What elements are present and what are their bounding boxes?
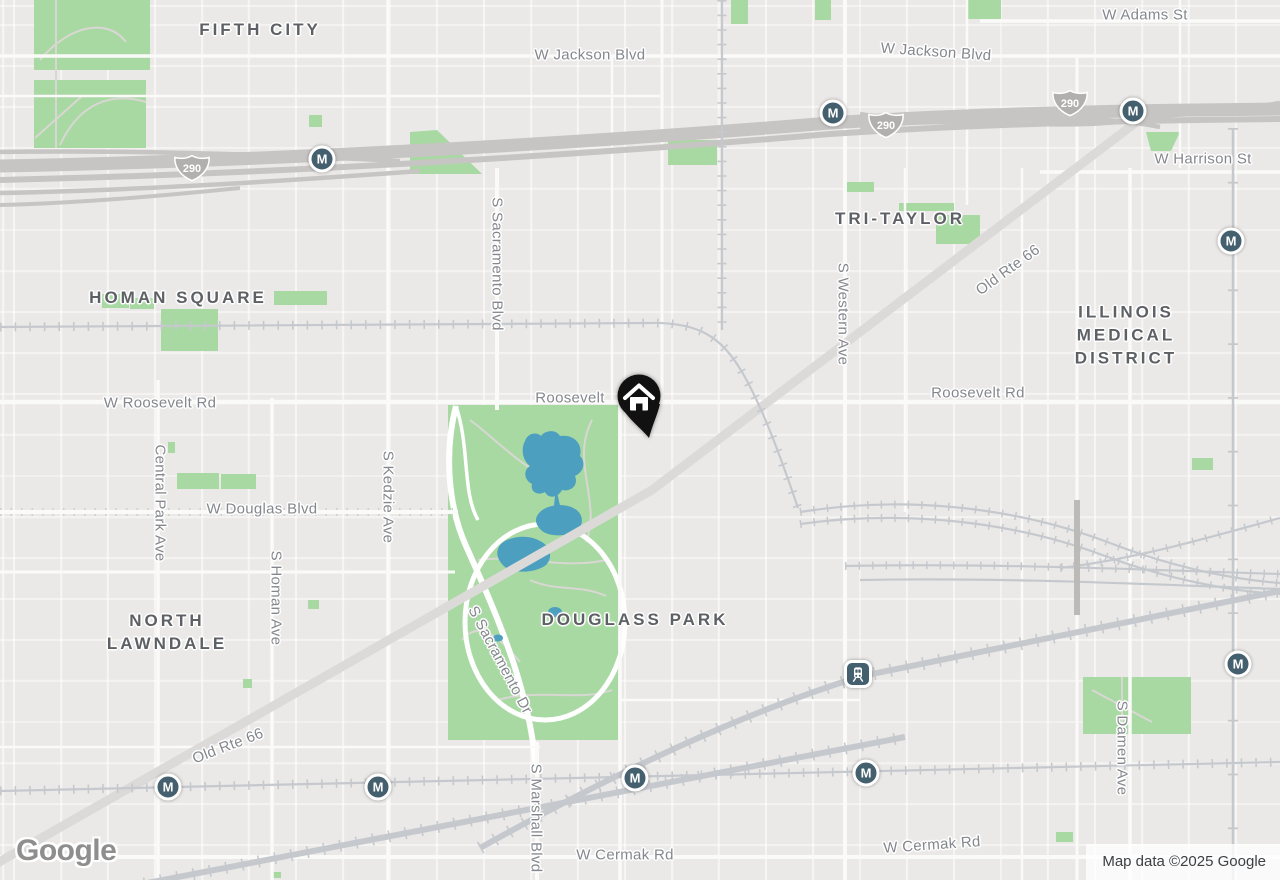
metro-station-marker[interactable]: M — [853, 760, 880, 787]
metro-letter: M — [373, 781, 384, 794]
route-shield-number: 290 — [1061, 98, 1079, 110]
metro-station-marker[interactable]: M — [1218, 228, 1245, 255]
imd-line2: MEDICAL — [1075, 324, 1177, 347]
map-attribution: Map data ©2025 Google — [1086, 844, 1280, 880]
home-pin-icon — [607, 370, 671, 444]
street-label-s-homan-ave: S Homan Ave — [268, 551, 285, 646]
metro-letter: M — [1233, 658, 1244, 671]
metro-station-marker[interactable]: M — [622, 765, 649, 792]
street-label-roosevelt-right: Roosevelt Rd — [931, 385, 1025, 402]
metro-station-marker[interactable]: M — [365, 774, 392, 801]
neighborhood-label-illinois-medical-district: ILLINOIS MEDICAL DISTRICT — [1075, 301, 1177, 370]
street-label-s-kedzie-ave: S Kedzie Ave — [380, 451, 397, 544]
neighborhood-label-north-lawndale: NORTH LAWNDALE — [107, 609, 227, 655]
neighborhood-label-douglass-park: DOUGLASS PARK — [542, 610, 729, 630]
home-location-pin[interactable] — [607, 370, 671, 449]
map-canvas[interactable]: FIFTH CITY HOMAN SQUARE TRI-TAYLOR ILLIN… — [0, 0, 1280, 880]
street-label-w-harrison: W Harrison St — [1154, 151, 1251, 168]
street-label-roosevelt-mid: Roosevelt — [535, 390, 604, 407]
route-shield-290-left: 290 — [173, 153, 211, 187]
street-label-s-sacramento-blvd: S Sacramento Blvd — [489, 197, 506, 331]
street-label-w-adams: W Adams St — [1102, 7, 1188, 24]
metro-letter: M — [317, 153, 328, 166]
metro-letter: M — [861, 767, 872, 780]
imd-line3: DISTRICT — [1075, 347, 1177, 370]
neighborhood-label-homan-square: HOMAN SQUARE — [89, 288, 267, 308]
street-label-central-park-ave: Central Park Ave — [152, 444, 169, 561]
route-shield-number: 290 — [183, 163, 201, 175]
imd-line1: ILLINOIS — [1075, 301, 1177, 324]
metro-letter: M — [630, 772, 641, 785]
neighborhood-label-tri-taylor: TRI-TAYLOR — [835, 209, 965, 229]
street-label-w-roosevelt: W Roosevelt Rd — [104, 395, 217, 412]
route-shield-number: 290 — [877, 120, 895, 132]
metro-letter: M — [1226, 235, 1237, 248]
metro-letter: M — [163, 781, 174, 794]
street-label-w-douglas: W Douglas Blvd — [207, 501, 318, 518]
train-icon — [850, 666, 866, 682]
street-label-s-western-ave: S Western Ave — [835, 263, 852, 366]
street-label-s-damen-ave: S Damen Ave — [1114, 701, 1131, 796]
metro-station-marker[interactable]: M — [309, 146, 336, 173]
neighborhood-label-fifth-city: FIFTH CITY — [199, 20, 321, 40]
metro-letter: M — [1128, 105, 1139, 118]
metro-station-marker[interactable]: M — [1225, 651, 1252, 678]
north-lawndale-line2: LAWNDALE — [107, 632, 227, 655]
train-station-marker[interactable] — [844, 660, 872, 688]
route-shield-290-right: 290 — [1051, 88, 1089, 122]
route-shield-290-mid: 290 — [867, 110, 905, 144]
metro-station-marker[interactable]: M — [820, 100, 847, 127]
metro-letter: M — [828, 107, 839, 120]
street-label-s-marshall-blvd: S Marshall Blvd — [528, 764, 545, 873]
street-label-w-jackson-left: W Jackson Blvd — [535, 47, 646, 64]
metro-station-marker[interactable]: M — [155, 774, 182, 801]
metro-station-marker[interactable]: M — [1120, 98, 1147, 125]
north-lawndale-line1: NORTH — [107, 609, 227, 632]
street-label-w-cermak-left: W Cermak Rd — [576, 847, 673, 864]
google-logo[interactable]: Google — [16, 834, 116, 868]
